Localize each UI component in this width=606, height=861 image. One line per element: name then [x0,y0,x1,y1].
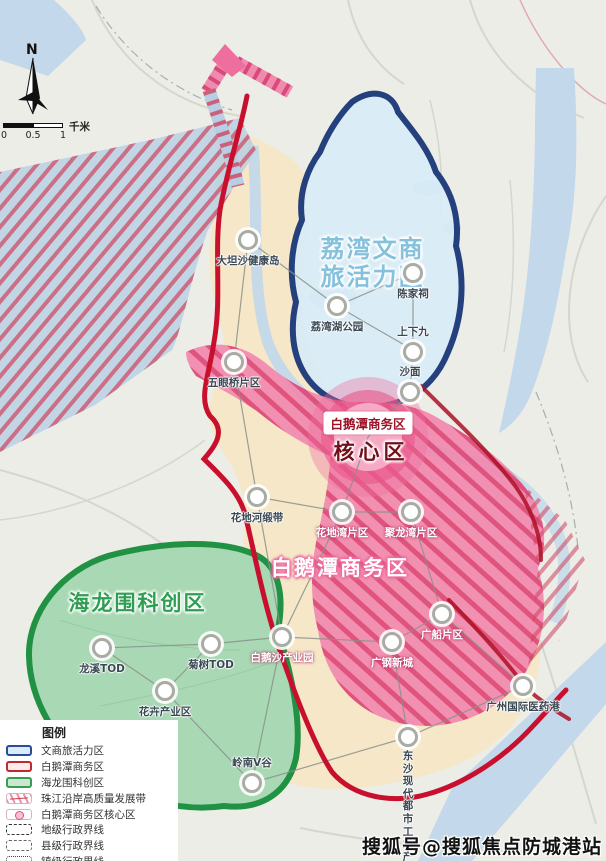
place-label: 大坦沙健康岛 [217,253,280,268]
legend-row: 地级行政界线 [6,822,178,838]
place-marker-dot [242,773,262,793]
place-label: 花卉产业区 [139,704,192,719]
legend-row: 镇级行政界线 [6,854,178,861]
place-label: 广州国际医药港 [486,699,560,714]
place-marker-dot [403,263,423,283]
legend-label: 白鹅潭商务区核心区 [41,807,136,822]
legend-label: 县级行政界线 [41,838,104,853]
place-marker-dot [513,676,533,696]
place-label: 花地河缎带 [231,510,284,525]
place-marker-dot [400,382,420,402]
place-label: 广船片区 [421,627,463,642]
place-label: 龙溪TOD [79,661,125,676]
legend-symbol-city-boundary [6,824,32,835]
hailongwei-zone-label: 海龙围科创区 [55,587,220,617]
place-marker-dot [224,352,244,372]
legend-label: 文商旅活力区 [41,743,104,758]
scale-tick: 0 [1,130,7,141]
place-label: 陈家祠 [397,286,429,301]
place-marker-dot [403,342,423,362]
place-marker-dot [382,632,402,652]
scale-unit: 千米 [69,119,90,134]
place-label: 上下九 [397,324,429,339]
legend-symbol-town-boundary [6,856,32,861]
legend-title: 图例 [42,724,178,741]
place-marker-dot [155,681,175,701]
core-area-label: 核心区 [334,436,409,466]
place-label: 五眼桥片区 [208,375,261,390]
place-label: 花地湾片区 [316,525,369,540]
north-label: N [26,42,38,58]
legend-panel: 图例 文商旅活力区 白鹅潭商务区 海龙围科创区 珠江沿岸高质量发展带 白鹅潭商务… [0,720,178,861]
legend-label: 地级行政界线 [41,822,104,837]
place-label: 岭南V谷 [232,755,272,770]
place-marker-dot [92,638,112,658]
place-marker-dot [401,502,421,522]
legend-row: 白鹅潭商务区 [6,759,178,775]
legend-row: 文商旅活力区 [6,743,178,759]
place-marker-dot [272,627,292,647]
legend-label: 白鹅潭商务区 [41,759,104,774]
place-label: 菊树TOD [188,657,234,672]
legend-symbol-green-zone [6,777,32,788]
watermark: 搜狐号@搜狐焦点防城港站 [362,832,602,859]
place-label: 沙面 [400,364,421,379]
legend-symbol-core [6,809,32,820]
place-label: 广钢新城 [371,655,413,670]
scale-tick: 1 [60,130,66,141]
place-marker-dot [201,634,221,654]
legend-row: 海龙围科创区 [6,775,178,791]
baietan-zone-label: 白鹅潭商务区 [255,552,425,582]
legend-label: 珠江沿岸高质量发展带 [41,791,146,806]
legend-row: 县级行政界线 [6,838,178,854]
legend-row: 珠江沿岸高质量发展带 [6,790,178,806]
scale-segment [3,123,33,128]
liwan-zone-label: 荔湾文商 旅活力区 [290,235,455,292]
legend-symbol-belt [6,793,32,804]
scale-tick: 0.5 [25,130,40,141]
place-marker-dot [398,727,418,747]
place-marker-dot [238,230,258,250]
legend-row: 白鹅潭商务区核心区 [6,806,178,822]
legend-label: 海龙围科创区 [41,775,104,790]
place-marker-dot [432,604,452,624]
place-label: 荔湾湖公园 [311,319,364,334]
legend-symbol-blue-zone [6,745,32,756]
place-label: 白鹅沙产业园 [251,650,314,665]
legend-label: 镇级行政界线 [41,854,104,861]
place-marker-dot [247,487,267,507]
place-marker-dot [332,502,352,522]
legend-symbol-red-zone [6,761,32,772]
legend-symbol-county-boundary [6,840,32,851]
scale-segment [33,123,63,128]
place-label: 聚龙湾片区 [385,525,438,540]
place-marker-dot [327,296,347,316]
planning-map: N 0 0.5 1 千米 荔湾文商 旅活力区 白鹅潭商务区 海龙围科创区 白鹅潭… [0,0,606,861]
core-area-tag: 白鹅潭商务区 [323,412,412,435]
